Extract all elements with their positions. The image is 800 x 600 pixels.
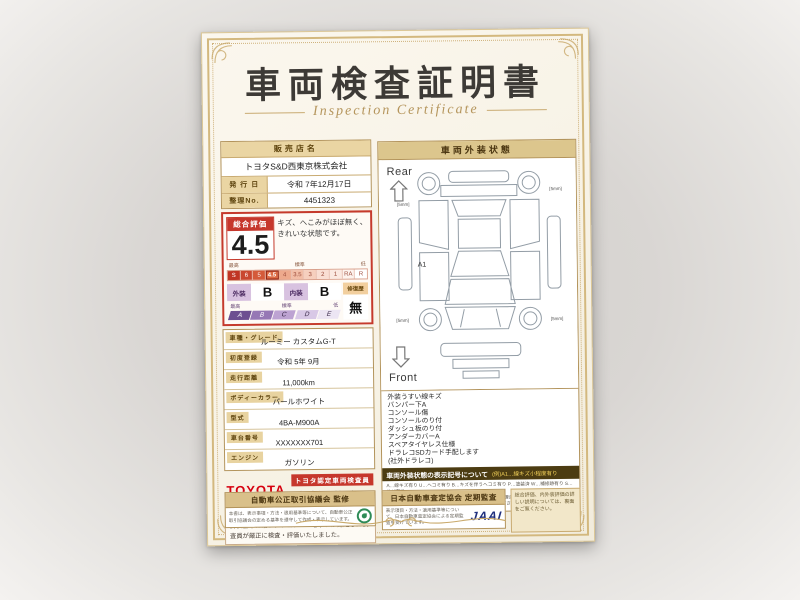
- ref-number-label: 整理No.: [222, 194, 268, 209]
- scale-cell: 6: [241, 271, 254, 280]
- score-scale-bar: S 6 5 4.5 4 3.5 3 2 1 RA R: [227, 269, 368, 282]
- letter-cell: A: [228, 311, 252, 320]
- certificate-subtitle: Inspection Certificate: [313, 102, 479, 120]
- store-table: 販売店名 トヨタS&D西東京株式会社 発 行 日 令和 7年12月17日 整理N…: [220, 139, 372, 209]
- legend-title: 車両外装状態の表示記号について: [386, 469, 488, 480]
- issue-date-label: 発 行 日: [222, 177, 268, 194]
- scale-cell: 3.5: [291, 270, 304, 279]
- letter-high-label: 最高: [230, 303, 240, 310]
- rating-top: 総合評価 4.5 キズ、へこみがほぼ無く、きれいな状態です。: [226, 215, 368, 260]
- tire-depth-note: [5mm]: [397, 202, 410, 207]
- left-column: 販売店名 トヨタS&D西東京株式会社 発 行 日 令和 7年12月17日 整理N…: [220, 139, 376, 545]
- issue-date-row: 発 行 日 令和 7年12月17日: [222, 175, 371, 194]
- certificate-subtitle-row: Inspection Certificate: [203, 101, 589, 122]
- overall-score-value: 4.5: [227, 231, 273, 260]
- store-name: トヨタS&D西東京株式会社: [221, 156, 370, 177]
- repair-history-label: 修復歴: [343, 283, 368, 295]
- damage-marker: A1: [418, 262, 427, 269]
- jaai-title: 日本自動車査定協会 定期監査: [382, 490, 504, 506]
- findings-list: 外装うすい線キズ バンパー下A コンソール傷 コンソールのり付 ダッシュ板のり付…: [381, 388, 579, 469]
- exterior-panel-title: 車両外装状態: [378, 140, 575, 160]
- info-value: ルーミー カスタムG-T: [224, 336, 373, 349]
- overall-rating-box: 総合評価 4.5 キズ、へこみがほぼ無く、きれいな状態です。 最高 標準 低 S…: [221, 210, 373, 326]
- letter-low-label: 低: [333, 302, 338, 309]
- ref-number-row: 整理No. 4451323: [222, 192, 371, 208]
- letter-mid-label: 標準: [282, 303, 292, 310]
- table-row: 車台番号 XXXXXXX701: [225, 429, 374, 451]
- table-row: 型式 4BA-M900A: [224, 409, 373, 431]
- certificate-paper: 車両検査証明書 Inspection Certificate 販売店名 トヨタS…: [201, 28, 595, 547]
- letter-cell: B: [250, 311, 274, 320]
- table-row: 走行距離 11,000km: [224, 369, 373, 391]
- tire-depth-note: [5mm]: [549, 186, 562, 191]
- rating-comment: キズ、へこみがほぼ無く、きれいな状態です。: [277, 215, 368, 259]
- bottom-flourish-icon: [208, 512, 594, 538]
- interior-grade: B: [308, 283, 341, 300]
- legend-example: (例)A1…線キズ小程度有り: [492, 469, 557, 478]
- info-value: XXXXXXX701: [225, 438, 374, 449]
- score-scale-labels: 最高 標準 低: [227, 259, 368, 270]
- scale-low-label: 低: [361, 261, 366, 268]
- exterior-label: 外装: [227, 284, 251, 301]
- tire-depth-note: [5mm]: [551, 316, 564, 321]
- scale-cell: 1: [330, 270, 343, 279]
- letter-cell: E: [317, 310, 341, 319]
- car-exploded-view: [378, 158, 581, 390]
- scale-high-label: 最高: [229, 262, 239, 269]
- grade-left: 外装 B 内装 B 最高 標準 低 A B C D: [227, 283, 341, 321]
- issue-date-value: 令和 7年12月17日: [268, 175, 371, 192]
- scale-cell: 2: [317, 270, 330, 279]
- grade-grid: 外装 B 内装 B 最高 標準 低 A B C D: [227, 283, 368, 322]
- repair-history-value: 無: [343, 295, 368, 320]
- letter-cell: D: [295, 310, 319, 319]
- scale-cell: 5: [253, 271, 266, 280]
- info-value: ガソリン: [225, 457, 374, 470]
- vehicle-diagram: Rear Front: [378, 158, 578, 390]
- repair-history-block: 修復歴 無: [343, 283, 368, 320]
- right-column: 車両外装状態 Rear Front: [377, 139, 581, 513]
- scale-cell: S: [228, 271, 241, 280]
- scale-cell: 4: [279, 271, 292, 280]
- exterior-condition-panel: 車両外装状態 Rear Front: [377, 139, 581, 513]
- vehicle-info-table: 車種・グレード ルーミー カスタムG-T 初度登録 令和 5年 9月 走行距離 …: [223, 328, 376, 472]
- scale-cell: RA: [342, 270, 355, 279]
- exterior-grade: B: [251, 284, 284, 301]
- inspector-cert-label: トヨタ認定車両検査員: [291, 474, 373, 487]
- scale-cell: 3: [304, 270, 317, 279]
- exterior-interior-row: 外装 B 内装 B: [227, 283, 341, 301]
- store-name-label: 販売店名: [221, 140, 370, 158]
- scale-cell: R: [355, 270, 367, 279]
- info-value: 4BA-M900A: [225, 418, 374, 429]
- letter-cell: C: [272, 311, 296, 320]
- info-value: パールホワイト: [224, 396, 373, 409]
- letter-scale-bar: A B C D E: [227, 309, 341, 321]
- interior-label: 内装: [284, 283, 308, 300]
- scale-mid-label: 標準: [295, 261, 305, 268]
- scale-cell-selected: 4.5: [266, 271, 279, 280]
- subtitle-ornament-right: [487, 109, 547, 111]
- table-row: 初度登録 令和 5年 9月: [224, 349, 373, 371]
- info-value: 令和 5年 9月: [224, 356, 373, 369]
- info-value: 11,000km: [224, 378, 373, 389]
- overall-score-block: 総合評価 4.5: [226, 217, 275, 261]
- subtitle-ornament-left: [245, 112, 305, 114]
- list-item: (社外ドラレコ): [388, 456, 579, 466]
- table-row: 車種・グレード ルーミー カスタムG-T: [224, 329, 373, 351]
- ref-number-value: 4451323: [268, 192, 371, 207]
- table-row: エンジン ガソリン: [225, 449, 374, 471]
- table-row: ボディーカラー パールホワイト: [224, 389, 373, 411]
- tire-depth-note: [5mm]: [396, 318, 409, 323]
